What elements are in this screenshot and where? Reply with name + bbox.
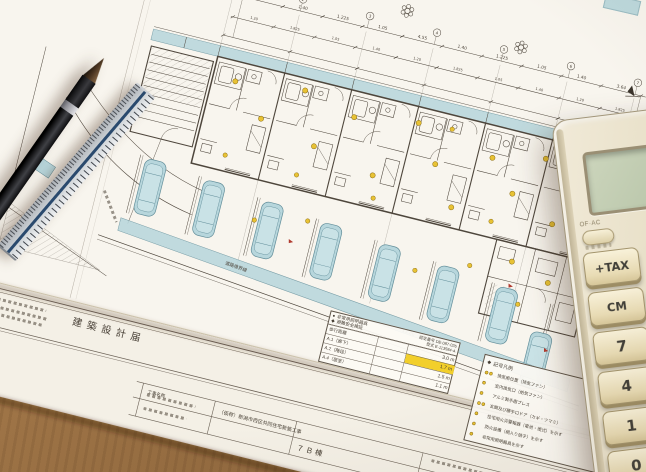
calc-key-cm: CM bbox=[587, 286, 646, 327]
desk-photo-scene: 4.55 1.40 1.225 1.05 4.55 1.40 1.225 1.0… bbox=[0, 0, 646, 472]
calc-key-4: 4 bbox=[597, 366, 646, 407]
power-key-label: OF·AC bbox=[579, 220, 601, 229]
calc-key-7: 7 bbox=[592, 326, 646, 367]
calc-key-plus-tax: +TAX bbox=[582, 247, 642, 288]
calculator-display bbox=[582, 134, 646, 216]
calc-key-0: 0 bbox=[607, 445, 646, 472]
calc-key-1: 1 bbox=[602, 405, 646, 446]
